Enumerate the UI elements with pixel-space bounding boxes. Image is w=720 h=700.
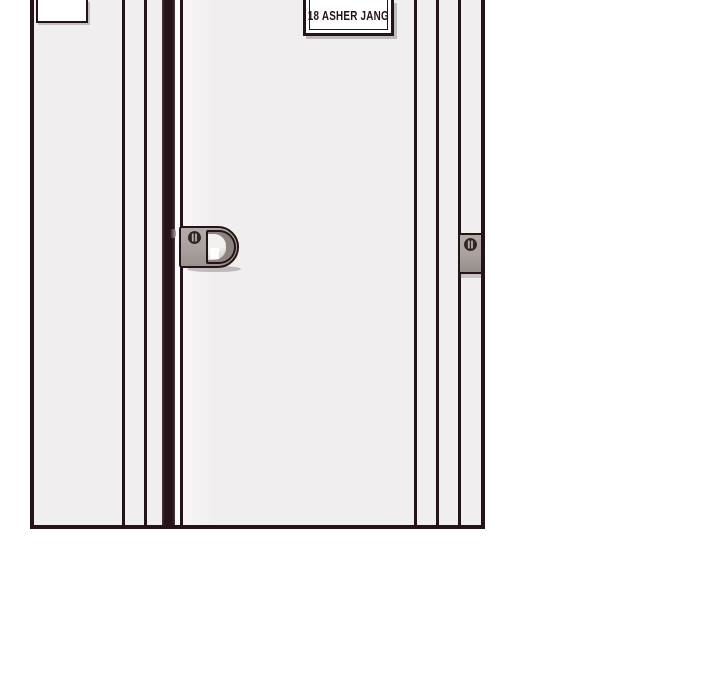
door-frame-line-left-outer [122, 0, 125, 525]
door-hinge-gap-stripe [162, 0, 175, 525]
door-right-edge-line [414, 0, 417, 525]
nameplate-inner-frame: 18 ASHER JANG [309, 0, 388, 30]
handle-highlight [210, 248, 219, 259]
latch-bolt [170, 229, 176, 238]
blank-wall-plaque [36, 0, 88, 23]
door-frame-line-left-inner [144, 0, 147, 525]
door-nameplate: 18 ASHER JANG [303, 0, 394, 36]
screw-icon [188, 231, 201, 244]
nameplate-text: 18 ASHER JANG [308, 7, 389, 23]
comic-panel-door-scene: 18 ASHER JANG [30, 0, 485, 529]
strike-plate-shadow [458, 274, 481, 278]
screw-icon [464, 238, 477, 251]
screw-icon-glyph [464, 238, 477, 251]
door-frame-line-right-inner [436, 0, 439, 525]
screw-icon-glyph [188, 231, 201, 244]
